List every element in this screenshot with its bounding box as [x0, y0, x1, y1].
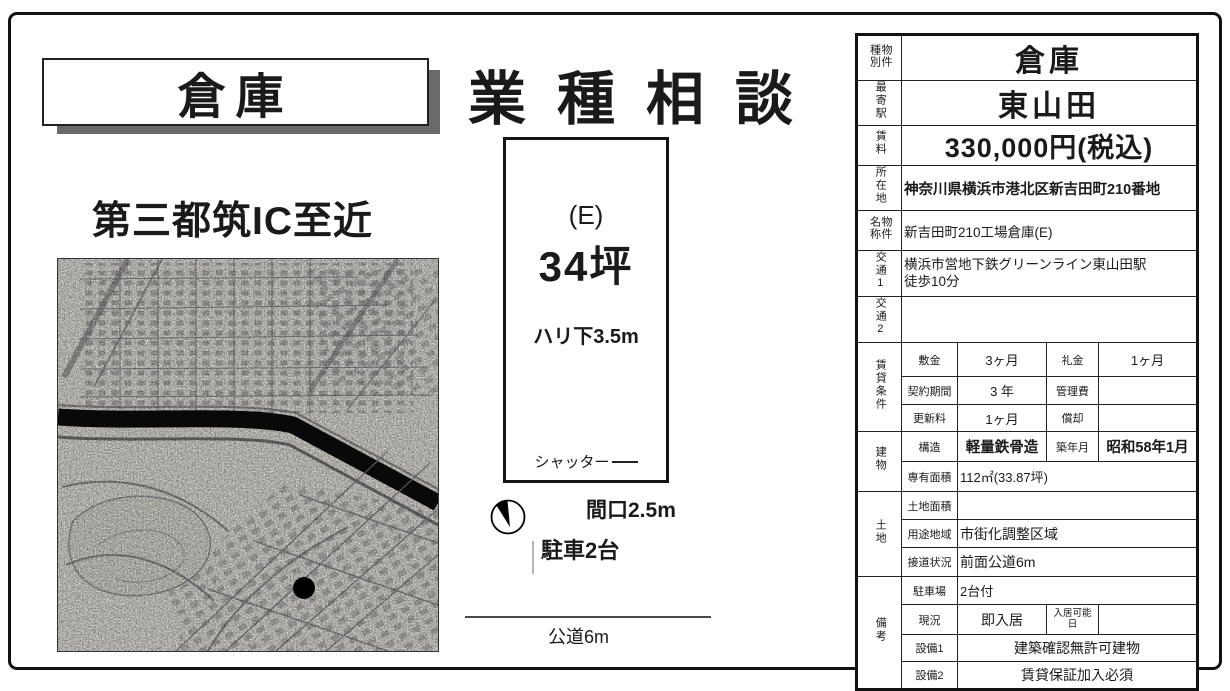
land-area-value: [958, 492, 1198, 520]
warehouse-title-box: 倉庫: [42, 58, 429, 126]
structure-value: 軽量鉄骨造: [958, 432, 1047, 462]
floorplan-box: (E) 34坪 ハリ下3.5m シャッター: [503, 137, 669, 483]
property-name-label: 物件名称: [868, 211, 891, 245]
table-row: 現況 即入居 入居可能日: [857, 605, 1198, 635]
parking-value: 2台付: [958, 577, 1198, 605]
dash-mark: [532, 541, 534, 574]
parking-label: 駐車場: [902, 577, 958, 605]
table-row: 契約期間 3 年 管理費: [857, 377, 1198, 405]
station-label: 最寄駅: [874, 81, 886, 120]
building-group-label-cell: 建物: [857, 432, 902, 492]
north-compass-icon: [488, 496, 528, 538]
built-date-value: 昭和58年1月: [1099, 432, 1198, 462]
land-area-label: 土地面積: [902, 492, 958, 520]
equipment1-value: 建築確認無許可建物: [958, 635, 1198, 662]
table-row: 所在地 神奈川県横浜市港北区新吉田町210番地: [857, 166, 1198, 211]
table-row: 賃料 330,000円(税込): [857, 126, 1198, 166]
table-row: 備考 駐車場 2台付: [857, 577, 1198, 605]
property-name-value: 新吉田町210工場倉庫(E): [902, 211, 1198, 251]
contract-period-label: 契約期間: [902, 377, 958, 405]
property-type-value: 倉庫: [902, 35, 1198, 81]
parking-count-label: 駐車2台: [541, 533, 619, 565]
key-money-label: 礼金: [1047, 343, 1099, 377]
access1-label: 交通1: [874, 251, 886, 291]
deposit-label: 敷金: [902, 343, 958, 377]
frontage-label: 間口2.5m: [586, 494, 676, 524]
management-fee-label: 管理費: [1047, 377, 1099, 405]
road-edge-line: [465, 616, 711, 618]
row-label-cell: 物件種別: [857, 35, 902, 81]
row-label-cell: 物件名称: [857, 211, 902, 251]
shutter-text: シャッター: [534, 451, 609, 472]
structure-label: 構造: [902, 432, 958, 462]
current-status-value: 即入居: [958, 605, 1047, 635]
property-type-label: 物件種別: [868, 39, 891, 73]
floorplan-unit-label: (E): [506, 200, 666, 231]
floor-area-label: 専有面積: [902, 462, 958, 492]
floorplan-ceiling-label: ハリ下3.5m: [506, 320, 666, 349]
table-row: 設備2 賃貸保証加入必須: [857, 662, 1198, 690]
equipment2-label: 設備2: [902, 662, 958, 690]
area-map-image: [58, 259, 438, 651]
row-label-cell: 最寄駅: [857, 81, 902, 126]
warehouse-title: 倉庫: [177, 57, 293, 127]
station-value: 東山田: [902, 81, 1198, 126]
renewal-fee-value: 1ヶ月: [958, 405, 1047, 432]
table-row: 物件名称 新吉田町210工場倉庫(E): [857, 211, 1198, 251]
land-group-label-cell: 土地: [857, 492, 902, 577]
row-label-cell: 賃料: [857, 126, 902, 166]
rent-label: 賃料: [874, 130, 886, 156]
notes-group-label: 備考: [874, 617, 886, 643]
key-money-value: 1ヶ月: [1099, 343, 1198, 377]
access2-label: 交通2: [874, 297, 886, 337]
access1-value: 横浜市営地下鉄グリーンライン東山田駅 徒歩10分: [902, 251, 1198, 297]
road-contact-value: 前面公道6m: [958, 548, 1198, 577]
building-group-label: 建物: [874, 446, 886, 472]
zoning-value: 市街化調整区域: [958, 520, 1198, 548]
table-row: 物件種別 倉庫: [857, 35, 1198, 81]
row-label-cell: 交通2: [857, 297, 902, 343]
equipment2-value: 賃貸保証加入必須: [958, 662, 1198, 690]
management-fee-value: [1099, 377, 1198, 405]
address-label: 所在地: [874, 166, 886, 205]
amortization-label: 償却: [1047, 405, 1099, 432]
spec-table: 物件種別 倉庫 最寄駅 東山田 賃料 330,000円(税込) 所在地 神奈川県…: [855, 33, 1199, 691]
table-row: 用途地域 市街化調整区域: [857, 520, 1198, 548]
current-status-label: 現況: [902, 605, 958, 635]
row-label-cell: 交通1: [857, 251, 902, 297]
notes-group-label-cell: 備考: [857, 577, 902, 690]
table-row: 土地 土地面積: [857, 492, 1198, 520]
shutter-line: [612, 461, 638, 463]
table-row: 建物 構造 軽量鉄骨造 築年月 昭和58年1月: [857, 432, 1198, 462]
equipment1-label: 設備1: [902, 635, 958, 662]
table-row: 接道状況 前面公道6m: [857, 548, 1198, 577]
main-title: 業種相談: [468, 52, 868, 136]
land-group-label: 土地: [874, 519, 886, 545]
table-row: 最寄駅 東山田: [857, 81, 1198, 126]
floorplan-size-label: 34坪: [506, 233, 666, 294]
deposit-value: 3ヶ月: [958, 343, 1047, 377]
area-map: [57, 258, 439, 652]
rent-value: 330,000円(税込): [902, 126, 1198, 166]
public-road-label: 公道6m: [548, 623, 609, 649]
table-row: 交通2: [857, 297, 1198, 343]
lease-group-label: 賃貸条件: [874, 359, 886, 411]
movein-date-label: 入居可能日: [1047, 605, 1099, 635]
floorplan-shutter-label: シャッター: [506, 451, 666, 472]
movein-date-value: [1099, 605, 1198, 635]
road-contact-label: 接道状況: [902, 548, 958, 577]
lease-group-label-cell: 賃貸条件: [857, 343, 902, 432]
zoning-label: 用途地域: [902, 520, 958, 548]
built-date-label: 築年月: [1047, 432, 1099, 462]
table-row: 専有面積 112㎡(33.87坪): [857, 462, 1198, 492]
subtitle-ic-proximity: 第三都筑IC至近: [92, 190, 437, 246]
access1-line1: 横浜市営地下鉄グリーンライン東山田駅: [904, 257, 1194, 273]
floor-area-value: 112㎡(33.87坪): [958, 462, 1198, 492]
contract-period-value: 3 年: [958, 377, 1047, 405]
row-label-cell: 所在地: [857, 166, 902, 211]
amortization-value: [1099, 405, 1198, 432]
table-row: 交通1 横浜市営地下鉄グリーンライン東山田駅 徒歩10分: [857, 251, 1198, 297]
table-row: 賃貸条件 敷金 3ヶ月 礼金 1ヶ月: [857, 343, 1198, 377]
table-row: 設備1 建築確認無許可建物: [857, 635, 1198, 662]
address-value: 神奈川県横浜市港北区新吉田町210番地: [902, 166, 1198, 211]
table-row: 更新料 1ヶ月 償却: [857, 405, 1198, 432]
renewal-fee-label: 更新料: [902, 405, 958, 432]
access2-value: [902, 297, 1198, 343]
access1-line2: 徒歩10分: [904, 274, 1194, 290]
